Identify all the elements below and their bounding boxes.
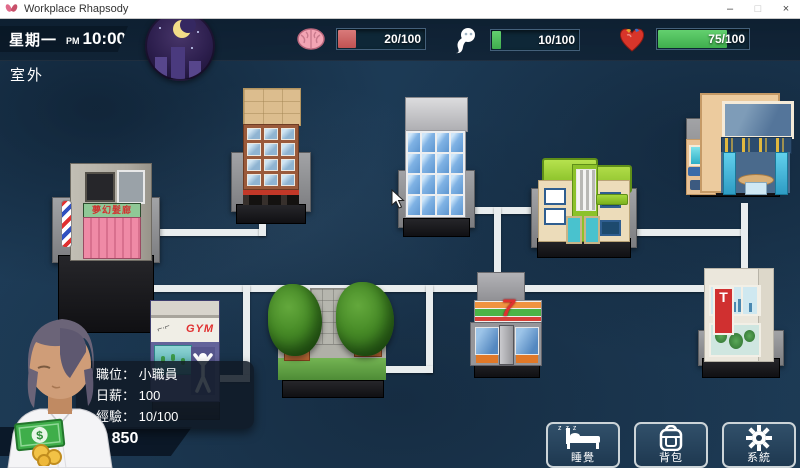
building-convenience-store[interactable]: 7	[460, 272, 550, 378]
building-restaurant[interactable]	[686, 93, 784, 208]
heart-icon	[618, 26, 646, 52]
stat-brain: 20/100	[296, 26, 426, 52]
park-tree	[268, 284, 322, 356]
drugstore-sign: T	[713, 287, 734, 335]
brain-bar-fill	[338, 30, 356, 48]
close-button[interactable]: ×	[772, 1, 800, 18]
stat-heart: 75/100	[618, 26, 750, 52]
spirit-bar-fill	[492, 31, 501, 49]
barber-pole-icon	[61, 200, 72, 248]
spirit-icon	[450, 26, 480, 54]
wage-value: 100	[139, 388, 161, 403]
window-titlebar: Workplace Rhapsody – □ ×	[0, 0, 800, 19]
building-green-house[interactable]	[531, 158, 637, 258]
spirit-bar: 10/100	[490, 29, 580, 51]
position-value: 小職員	[139, 367, 178, 382]
backpack-icon	[656, 425, 686, 451]
building-hair-salon[interactable]: 夢幻髮廊	[52, 163, 160, 333]
backpack-button[interactable]: 背包	[634, 422, 708, 468]
building-drugstore[interactable]: T	[698, 268, 784, 378]
night-moon-icon	[145, 11, 215, 81]
road-office-house	[471, 207, 535, 214]
road-restaurant-drugstore	[741, 203, 748, 273]
location-label: 室外	[10, 64, 44, 85]
time-display: 星期一 PM 10:00	[0, 26, 128, 52]
sleep-button-label: 睡覺	[571, 451, 595, 466]
window-title: Workplace Rhapsody	[24, 3, 128, 15]
game-window: Workplace Rhapsody – □ × 星期一 PM 10:00 室外…	[0, 0, 800, 468]
zzz-icon: z z z	[558, 425, 577, 432]
maximize-button[interactable]: □	[744, 1, 772, 18]
brain-bar: 20/100	[336, 28, 426, 50]
spirit-value: 10/100	[538, 30, 575, 50]
road-park-stub	[386, 366, 433, 373]
gym-sign: GYM	[186, 323, 214, 335]
brain-icon	[296, 26, 326, 52]
building-apartment[interactable]	[231, 88, 311, 224]
backpack-button-label: 背包	[659, 451, 683, 466]
cash-coins-icon: $	[14, 416, 72, 468]
system-button-label: 系統	[747, 451, 771, 466]
road-park-branch	[426, 285, 433, 373]
heart-bar: 75/100	[656, 28, 750, 50]
gear-icon	[745, 425, 773, 451]
heart-value: 75/100	[708, 29, 745, 49]
system-button[interactable]: 系統	[722, 422, 796, 468]
road-lower-right	[522, 285, 710, 292]
weekday-label: 星期一	[9, 29, 57, 50]
building-office-tower[interactable]	[398, 97, 475, 237]
stat-spirit: 10/100	[450, 26, 580, 54]
brain-value: 20/100	[384, 29, 421, 49]
road-to-convenience	[494, 207, 501, 281]
building-park[interactable]	[274, 282, 390, 400]
road-house-restaurant	[635, 229, 748, 236]
park-tree	[336, 282, 394, 356]
hair-salon-sign: 夢幻髮廊	[83, 203, 141, 218]
sleep-button[interactable]: z z z 睡覺	[546, 422, 620, 468]
exp-value: 10/100	[139, 409, 179, 424]
clock-label: 10:00	[83, 29, 126, 49]
seven-logo: 7	[475, 295, 541, 323]
mouse-cursor	[391, 189, 405, 214]
app-icon	[6, 4, 17, 14]
salon-shutter	[83, 217, 141, 259]
minimize-button[interactable]: –	[716, 1, 744, 18]
meridiem-label: PM	[66, 36, 80, 46]
